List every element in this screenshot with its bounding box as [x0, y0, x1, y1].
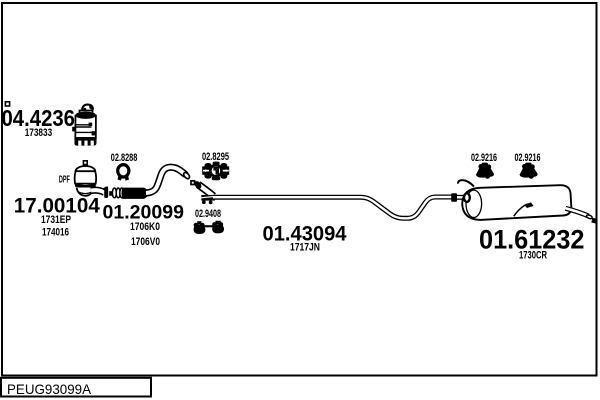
svg-text:02.9408: 02.9408	[195, 208, 221, 220]
svg-text:1706K0: 1706K0	[130, 221, 160, 233]
svg-text:1717JN: 1717JN	[290, 242, 320, 254]
svg-text:1706V0: 1706V0	[131, 236, 160, 248]
svg-text:02.9216: 02.9216	[471, 152, 497, 164]
svg-text:DPF: DPF	[59, 174, 70, 185]
svg-text:173833: 173833	[25, 127, 53, 139]
svg-text:02.8288: 02.8288	[111, 152, 138, 164]
svg-text:1731EP: 1731EP	[41, 214, 71, 226]
svg-text:PEUG93099A: PEUG93099A	[7, 381, 92, 397]
svg-text:174016: 174016	[42, 226, 69, 238]
svg-text:1730CR: 1730CR	[519, 250, 547, 262]
svg-text:02.9216: 02.9216	[515, 152, 541, 164]
svg-text:02.8295: 02.8295	[202, 151, 229, 163]
